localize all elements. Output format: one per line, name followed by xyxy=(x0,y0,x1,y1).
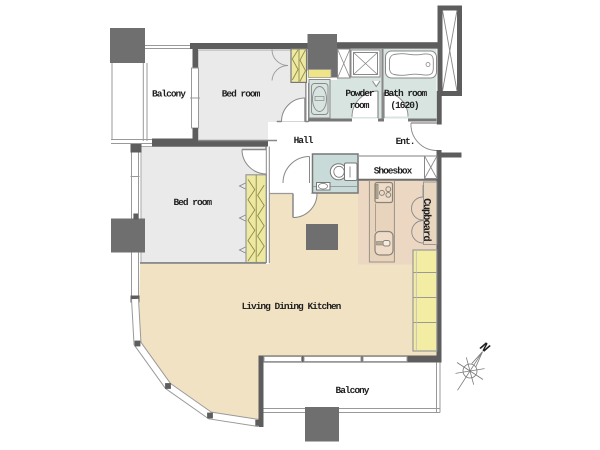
svg-text:Balcony: Balcony xyxy=(336,385,370,396)
svg-text:Powder: Powder xyxy=(345,88,375,99)
svg-text:Cupboard: Cupboard xyxy=(420,198,432,241)
svg-text:(1620): (1620) xyxy=(390,100,419,111)
svg-text:Shoesbox: Shoesbox xyxy=(374,166,413,177)
svg-text:Bed room: Bed room xyxy=(222,89,261,100)
svg-text:Bed room: Bed room xyxy=(173,197,212,208)
svg-text:Hall: Hall xyxy=(294,135,314,146)
svg-text:Living Dining Kitchen: Living Dining Kitchen xyxy=(242,301,342,312)
svg-text:Balcony: Balcony xyxy=(152,89,186,100)
svg-text:Ent.: Ent. xyxy=(396,136,415,147)
svg-text:Bath room: Bath room xyxy=(384,88,428,99)
svg-text:room: room xyxy=(350,100,370,111)
